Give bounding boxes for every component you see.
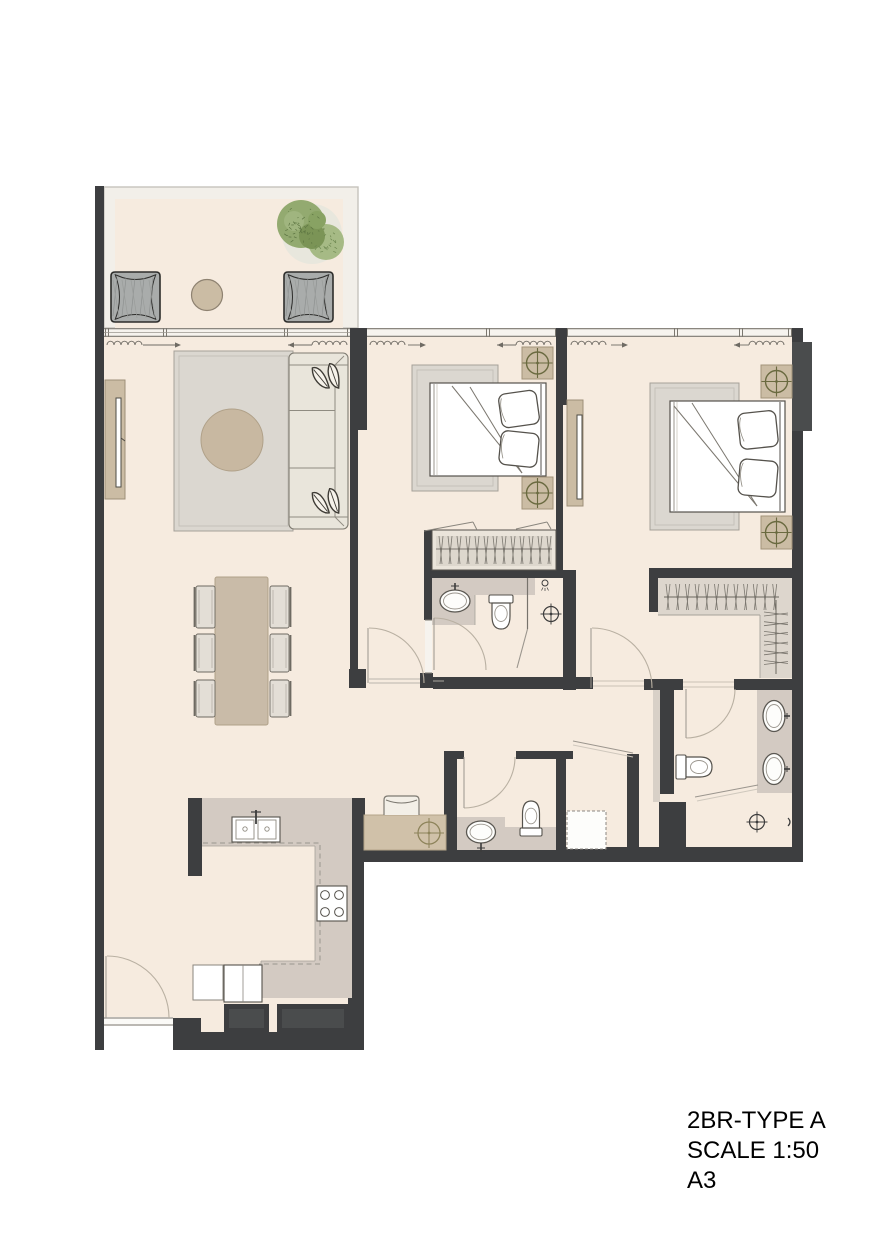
svg-text:SCALE 1:50: SCALE 1:50 [687,1137,819,1164]
svg-text:2BR-TYPE A: 2BR-TYPE A [687,1107,826,1134]
svg-text:A3: A3 [687,1167,716,1194]
